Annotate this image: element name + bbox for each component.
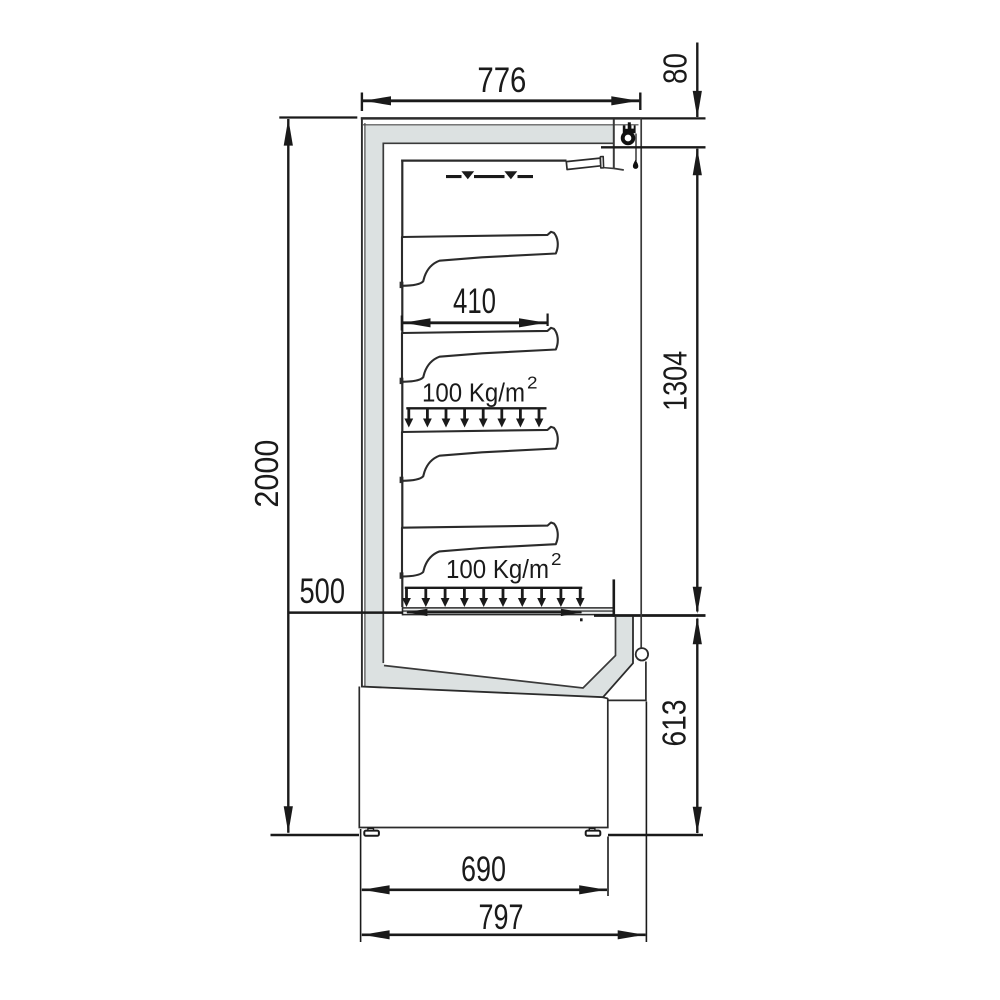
svg-text:1304: 1304 xyxy=(657,351,694,411)
svg-text:797: 797 xyxy=(479,897,524,937)
svg-text:100 Kg/m: 100 Kg/m xyxy=(446,556,549,584)
svg-text:2: 2 xyxy=(527,373,538,393)
svg-text:613: 613 xyxy=(656,700,693,747)
svg-text:80: 80 xyxy=(657,53,694,84)
svg-text:776: 776 xyxy=(477,60,526,100)
svg-text:690: 690 xyxy=(461,849,506,889)
svg-text:410: 410 xyxy=(453,282,496,321)
svg-text:100 Kg/m: 100 Kg/m xyxy=(422,380,525,408)
svg-text:2000: 2000 xyxy=(248,440,285,508)
svg-text:2: 2 xyxy=(551,549,562,569)
svg-text:500: 500 xyxy=(300,571,346,611)
